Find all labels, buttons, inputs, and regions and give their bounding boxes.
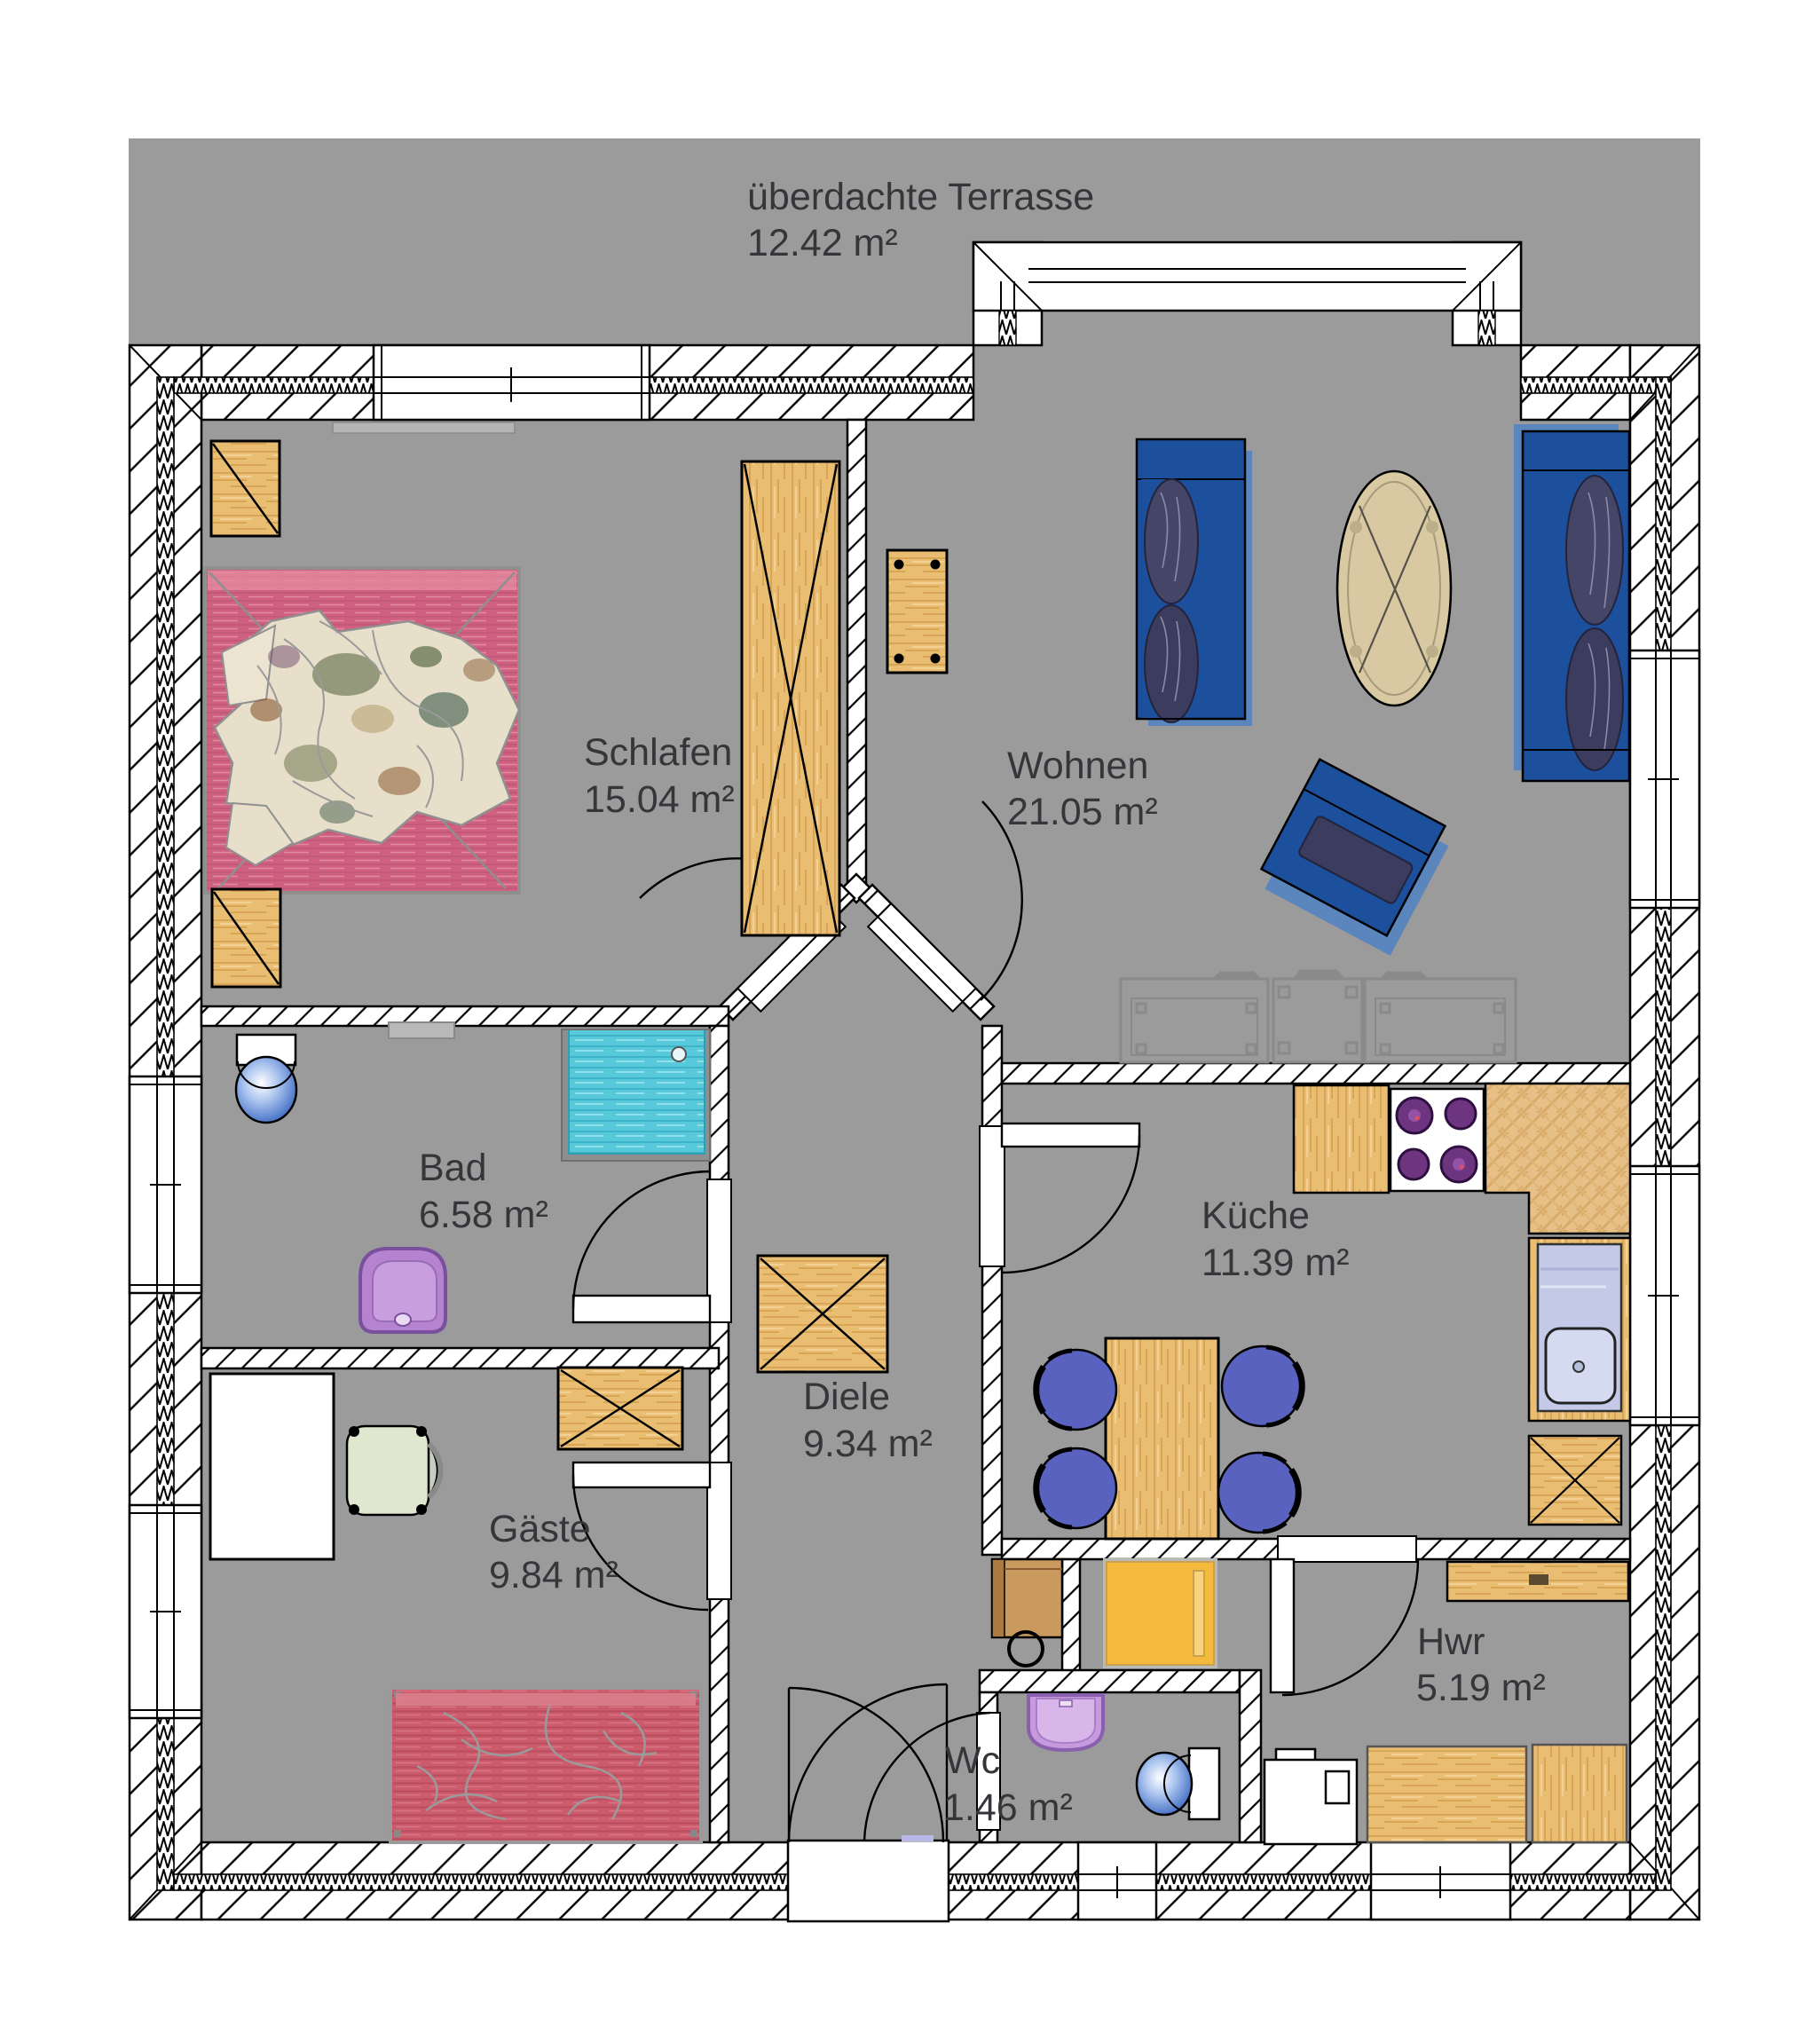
- svg-text:9.34 m²: 9.34 m²: [803, 1423, 933, 1465]
- svg-text:Schlafen: Schlafen: [584, 731, 732, 774]
- svg-text:überdachte Terrasse: überdachte Terrasse: [747, 176, 1094, 218]
- svg-text:21.05 m²: 21.05 m²: [1007, 791, 1158, 833]
- svg-text:15.04 m²: 15.04 m²: [584, 778, 735, 821]
- svg-text:Bad: Bad: [419, 1147, 487, 1189]
- svg-text:Gäste: Gäste: [489, 1508, 591, 1550]
- svg-text:Diele: Diele: [803, 1376, 890, 1418]
- svg-text:12.42 m²: 12.42 m²: [747, 222, 898, 264]
- svg-text:Hwr: Hwr: [1417, 1620, 1485, 1663]
- svg-text:6.58 m²: 6.58 m²: [419, 1194, 548, 1236]
- svg-text:Küche: Küche: [1202, 1194, 1310, 1237]
- svg-text:11.39 m²: 11.39 m²: [1202, 1242, 1350, 1284]
- svg-text:Wc: Wc: [945, 1739, 1000, 1782]
- svg-text:1.46 m²: 1.46 m²: [943, 1786, 1073, 1829]
- svg-text:9.84 m²: 9.84 m²: [489, 1554, 618, 1597]
- svg-text:Wohnen: Wohnen: [1007, 745, 1148, 787]
- svg-text:5.19 m²: 5.19 m²: [1416, 1667, 1546, 1709]
